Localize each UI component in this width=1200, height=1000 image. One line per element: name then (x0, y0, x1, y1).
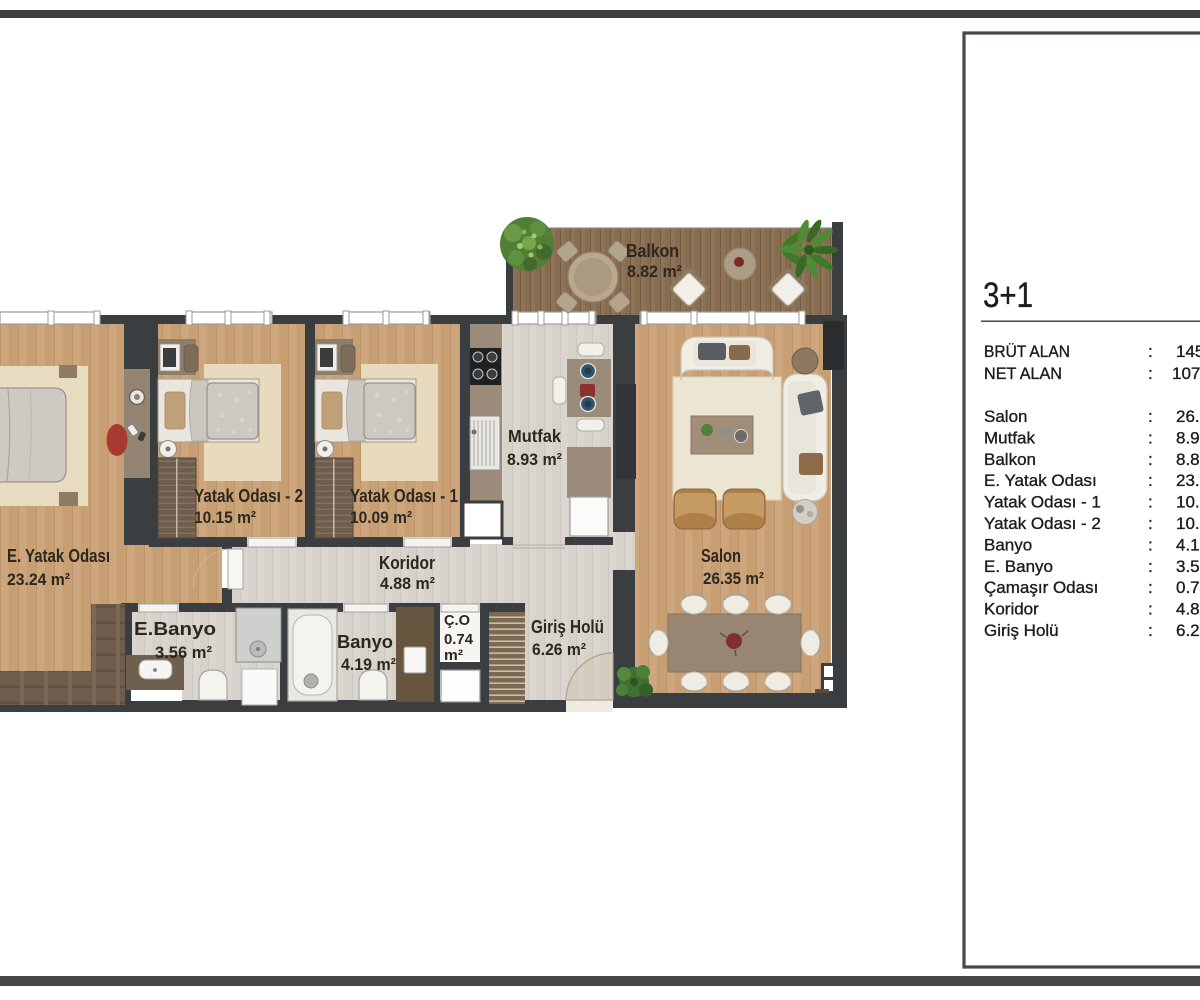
svg-text::: : (1148, 428, 1153, 447)
svg-text:23.24 m²: 23.24 m² (7, 570, 70, 589)
svg-text:8.82: 8.82 (1176, 450, 1200, 469)
svg-text:4.19 m²: 4.19 m² (341, 655, 396, 674)
svg-text:E. Banyo: E. Banyo (984, 557, 1053, 576)
svg-text:8.82 m²: 8.82 m² (627, 262, 682, 281)
svg-text:BRÜT ALAN: BRÜT ALAN (984, 343, 1070, 361)
svg-text::: : (1148, 600, 1153, 619)
svg-text:0.74: 0.74 (444, 631, 474, 648)
svg-text:NET ALAN: NET ALAN (984, 365, 1062, 383)
svg-text:Mutfak: Mutfak (984, 428, 1036, 447)
svg-text:Giriş Holü: Giriş Holü (531, 617, 604, 637)
svg-text:Ç.O: Ç.O (444, 612, 470, 629)
svg-text::: : (1148, 471, 1153, 490)
svg-text::: : (1148, 407, 1153, 426)
svg-text:Koridor: Koridor (984, 600, 1039, 619)
svg-text:Koridor: Koridor (379, 553, 435, 573)
svg-text:6.26: 6.26 (1176, 621, 1200, 640)
svg-text:Salon: Salon (984, 407, 1027, 426)
svg-text:E. Yatak Odası: E. Yatak Odası (984, 471, 1097, 490)
svg-text:Banyo: Banyo (337, 632, 393, 652)
svg-text:10.15: 10.15 (1176, 514, 1200, 533)
svg-text:3+1: 3+1 (983, 276, 1033, 315)
svg-text:Yatak Odası - 2: Yatak Odası - 2 (194, 486, 303, 506)
svg-text::: : (1148, 535, 1153, 554)
svg-text:23.24: 23.24 (1176, 471, 1200, 490)
svg-text:E.Banyo: E.Banyo (134, 618, 216, 639)
svg-text::: : (1148, 578, 1153, 597)
svg-text::: : (1148, 364, 1153, 383)
svg-text:E. Yatak Odası: E. Yatak Odası (7, 546, 110, 566)
svg-text::: : (1148, 342, 1153, 361)
svg-text:145.66: 145.66 (1176, 342, 1200, 361)
svg-text:m²: m² (444, 647, 463, 664)
svg-text:10.09: 10.09 (1176, 493, 1200, 512)
svg-text:4.88 m²: 4.88 m² (380, 574, 435, 593)
svg-text:4.19: 4.19 (1176, 535, 1200, 554)
svg-text:6.26 m²: 6.26 m² (532, 640, 586, 659)
svg-text::: : (1148, 450, 1153, 469)
svg-text::: : (1148, 514, 1153, 533)
svg-text:10.15 m²: 10.15 m² (194, 508, 256, 527)
svg-text:3.56 m²: 3.56 m² (155, 643, 212, 662)
svg-text:Çamaşır Odası: Çamaşır Odası (984, 578, 1098, 597)
svg-text::: : (1148, 493, 1153, 512)
svg-text::: : (1148, 621, 1153, 640)
svg-text:0.74: 0.74 (1176, 578, 1200, 597)
svg-text:8.93 m²: 8.93 m² (507, 450, 562, 469)
svg-text:107.21: 107.21 (1172, 364, 1200, 383)
svg-text:Mutfak: Mutfak (508, 426, 561, 446)
svg-text:Yatak Odası - 1: Yatak Odası - 1 (984, 493, 1101, 512)
svg-text:Balkon: Balkon (984, 450, 1036, 469)
svg-text:Balkon: Balkon (626, 241, 679, 261)
svg-text:10.09 m²: 10.09 m² (350, 508, 412, 527)
svg-text:26.35: 26.35 (1176, 407, 1200, 426)
svg-text:Salon: Salon (701, 546, 741, 566)
svg-text:3.56: 3.56 (1176, 557, 1200, 576)
svg-text:4.88: 4.88 (1176, 600, 1200, 619)
svg-text:26.35 m²: 26.35 m² (703, 569, 764, 588)
svg-text:Giriş Holü: Giriş Holü (984, 621, 1059, 640)
svg-text:Banyo: Banyo (984, 535, 1032, 554)
svg-text:8.93: 8.93 (1176, 428, 1200, 447)
svg-text:Yatak Odası - 1: Yatak Odası - 1 (350, 486, 458, 506)
svg-text::: : (1148, 557, 1153, 576)
svg-text:Yatak Odası - 2: Yatak Odası - 2 (984, 514, 1101, 533)
